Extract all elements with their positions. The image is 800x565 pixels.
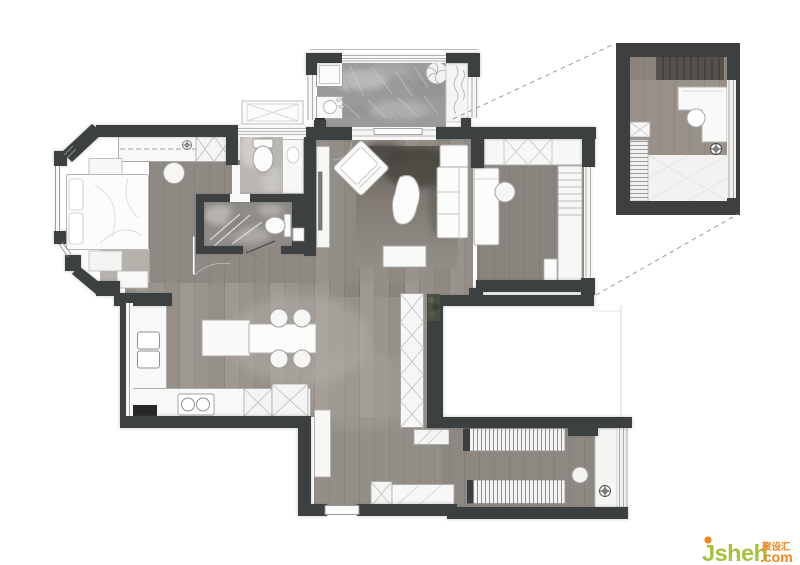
svg-text:Jsheh: Jsheh (702, 540, 767, 565)
svg-text:.com: .com (760, 549, 793, 565)
